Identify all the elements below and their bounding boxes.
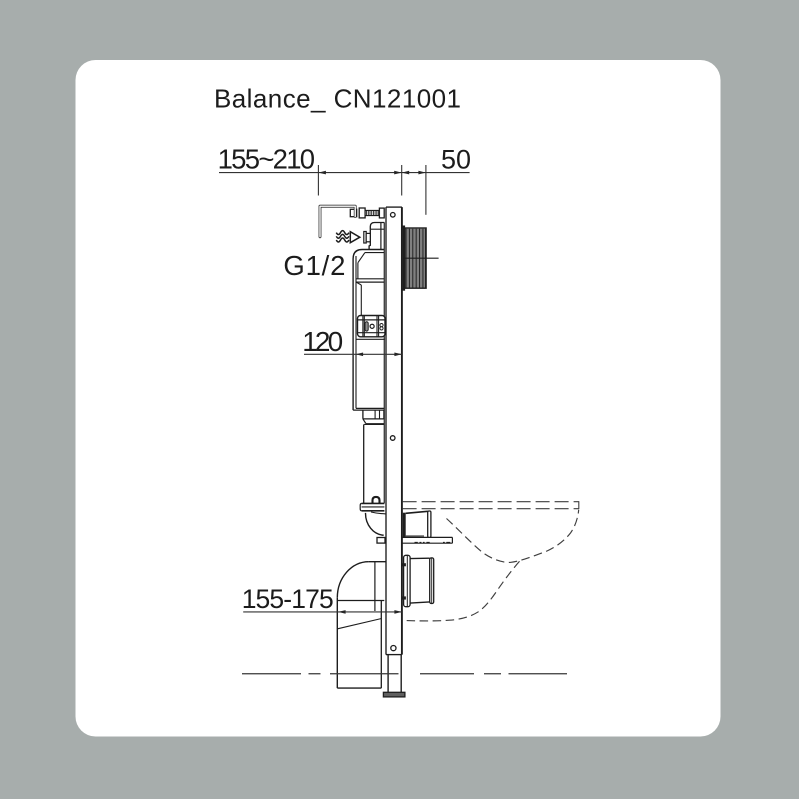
svg-text:Balance_ CN121001: Balance_ CN121001 <box>214 84 461 114</box>
svg-text:155-175: 155-175 <box>242 584 334 614</box>
svg-text:50: 50 <box>441 145 471 175</box>
svg-text:G1/2: G1/2 <box>283 250 345 281</box>
svg-text:155~210: 155~210 <box>218 144 316 175</box>
svg-text:120: 120 <box>302 326 343 357</box>
